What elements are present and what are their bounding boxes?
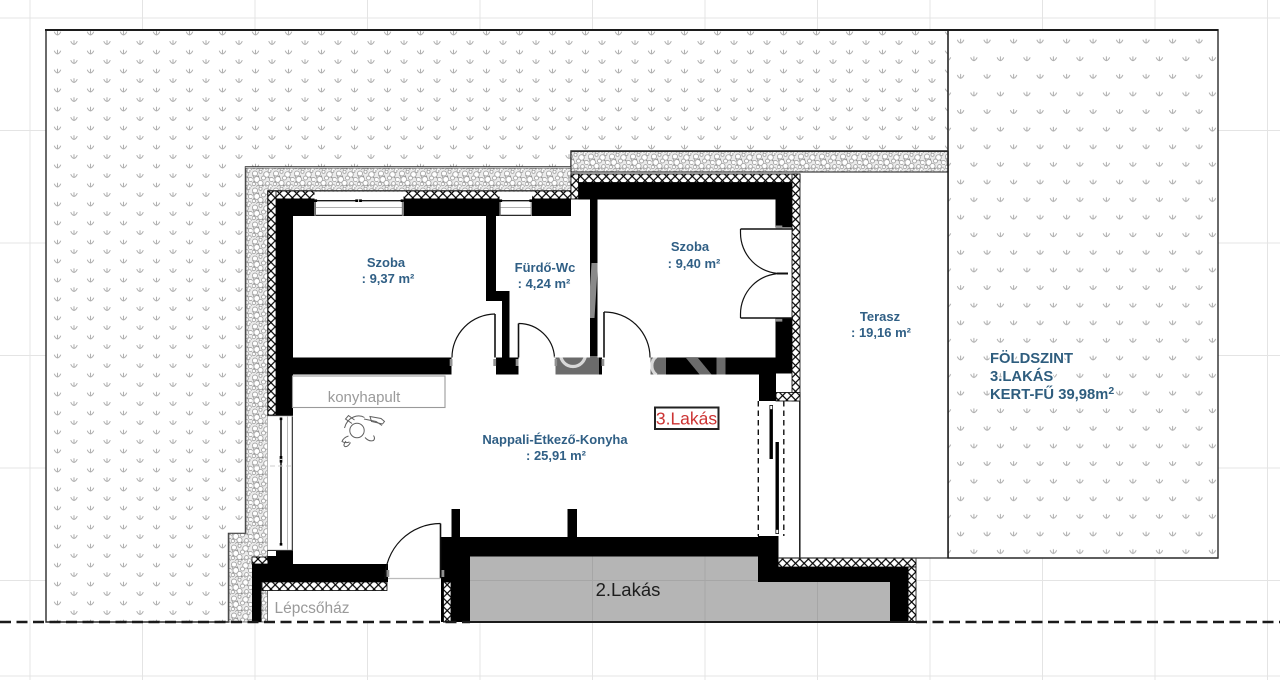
- svg-text:: 9,37 m²: : 9,37 m²: [362, 271, 415, 286]
- svg-text:: 19,16 m²: : 19,16 m²: [851, 325, 912, 340]
- svg-text:Nappali-Étkező-Konyha: Nappali-Étkező-Konyha: [482, 432, 628, 447]
- svg-text:3.Lakás: 3.Lakás: [656, 409, 718, 429]
- svg-text:: 4,24 m²: : 4,24 m²: [518, 276, 571, 291]
- svg-text:: 25,91 m²: : 25,91 m²: [526, 448, 587, 463]
- svg-text:2.Lakás: 2.Lakás: [596, 579, 661, 600]
- svg-text:3.LAKÁS: 3.LAKÁS: [990, 368, 1053, 385]
- svg-text:FÖLDSZINT: FÖLDSZINT: [990, 350, 1073, 367]
- svg-text:konyhapult: konyhapult: [328, 389, 401, 406]
- svg-text:Terasz: Terasz: [860, 309, 901, 324]
- svg-text:Szoba: Szoba: [671, 239, 710, 254]
- svg-text:Fürdő-Wc: Fürdő-Wc: [515, 260, 576, 275]
- svg-text:KERT-FŰ 39,98m2: KERT-FŰ 39,98m2: [990, 385, 1114, 403]
- svg-text:: 9,40 m²: : 9,40 m²: [668, 256, 721, 271]
- svg-text:Szoba: Szoba: [367, 255, 406, 270]
- svg-text:Lépcsőház: Lépcsőház: [275, 600, 350, 617]
